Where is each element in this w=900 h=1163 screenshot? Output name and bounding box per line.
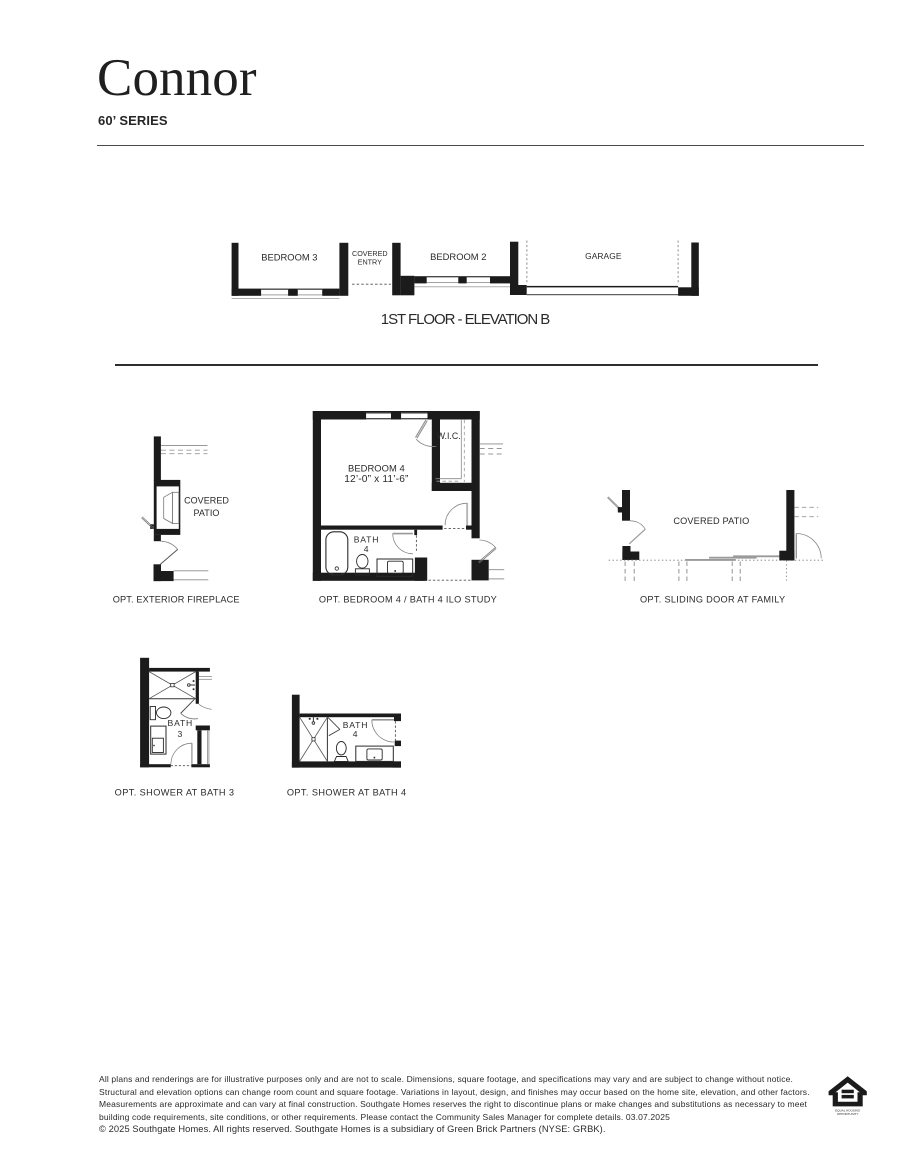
svg-text:COVERED PATIO: COVERED PATIO <box>673 516 749 526</box>
svg-text:COVERED: COVERED <box>184 495 229 505</box>
svg-text:BATH: BATH <box>168 718 193 728</box>
svg-text:OPT. SHOWER AT BATH 4: OPT. SHOWER AT BATH 4 <box>287 787 407 797</box>
svg-text:OPT. BEDROOM 4 / BATH 4 ILO ST: OPT. BEDROOM 4 / BATH 4 ILO STUDY <box>319 595 497 605</box>
svg-text:BEDROOM 4: BEDROOM 4 <box>348 462 405 473</box>
svg-text:1ST FLOOR - ELEVATION B: 1ST FLOOR - ELEVATION B <box>381 311 550 328</box>
svg-text:BEDROOM 3: BEDROOM 3 <box>261 252 317 263</box>
svg-text:BATH: BATH <box>354 534 379 544</box>
svg-text:BEDROOM 2: BEDROOM 2 <box>430 251 486 262</box>
svg-text:OPPORTUNITY: OPPORTUNITY <box>837 1112 859 1116</box>
svg-text:12’-0” x 11’-6”: 12’-0” x 11’-6” <box>344 474 409 485</box>
svg-text:PATIO: PATIO <box>194 508 220 518</box>
svg-text:ENTRY: ENTRY <box>358 258 382 267</box>
svg-text:OPT. SHOWER AT BATH 3: OPT. SHOWER AT BATH 3 <box>115 787 235 797</box>
svg-text:4: 4 <box>364 544 370 554</box>
svg-text:OPT. EXTERIOR FIREPLACE: OPT. EXTERIOR FIREPLACE <box>113 595 240 605</box>
svg-text:3: 3 <box>178 729 184 739</box>
svg-text:GARAGE: GARAGE <box>585 251 622 261</box>
svg-text:W.I.C.: W.I.C. <box>437 431 461 441</box>
svg-text:4: 4 <box>353 729 359 739</box>
svg-text:OPT. SLIDING DOOR AT FAMILY: OPT. SLIDING DOOR AT FAMILY <box>640 595 785 605</box>
